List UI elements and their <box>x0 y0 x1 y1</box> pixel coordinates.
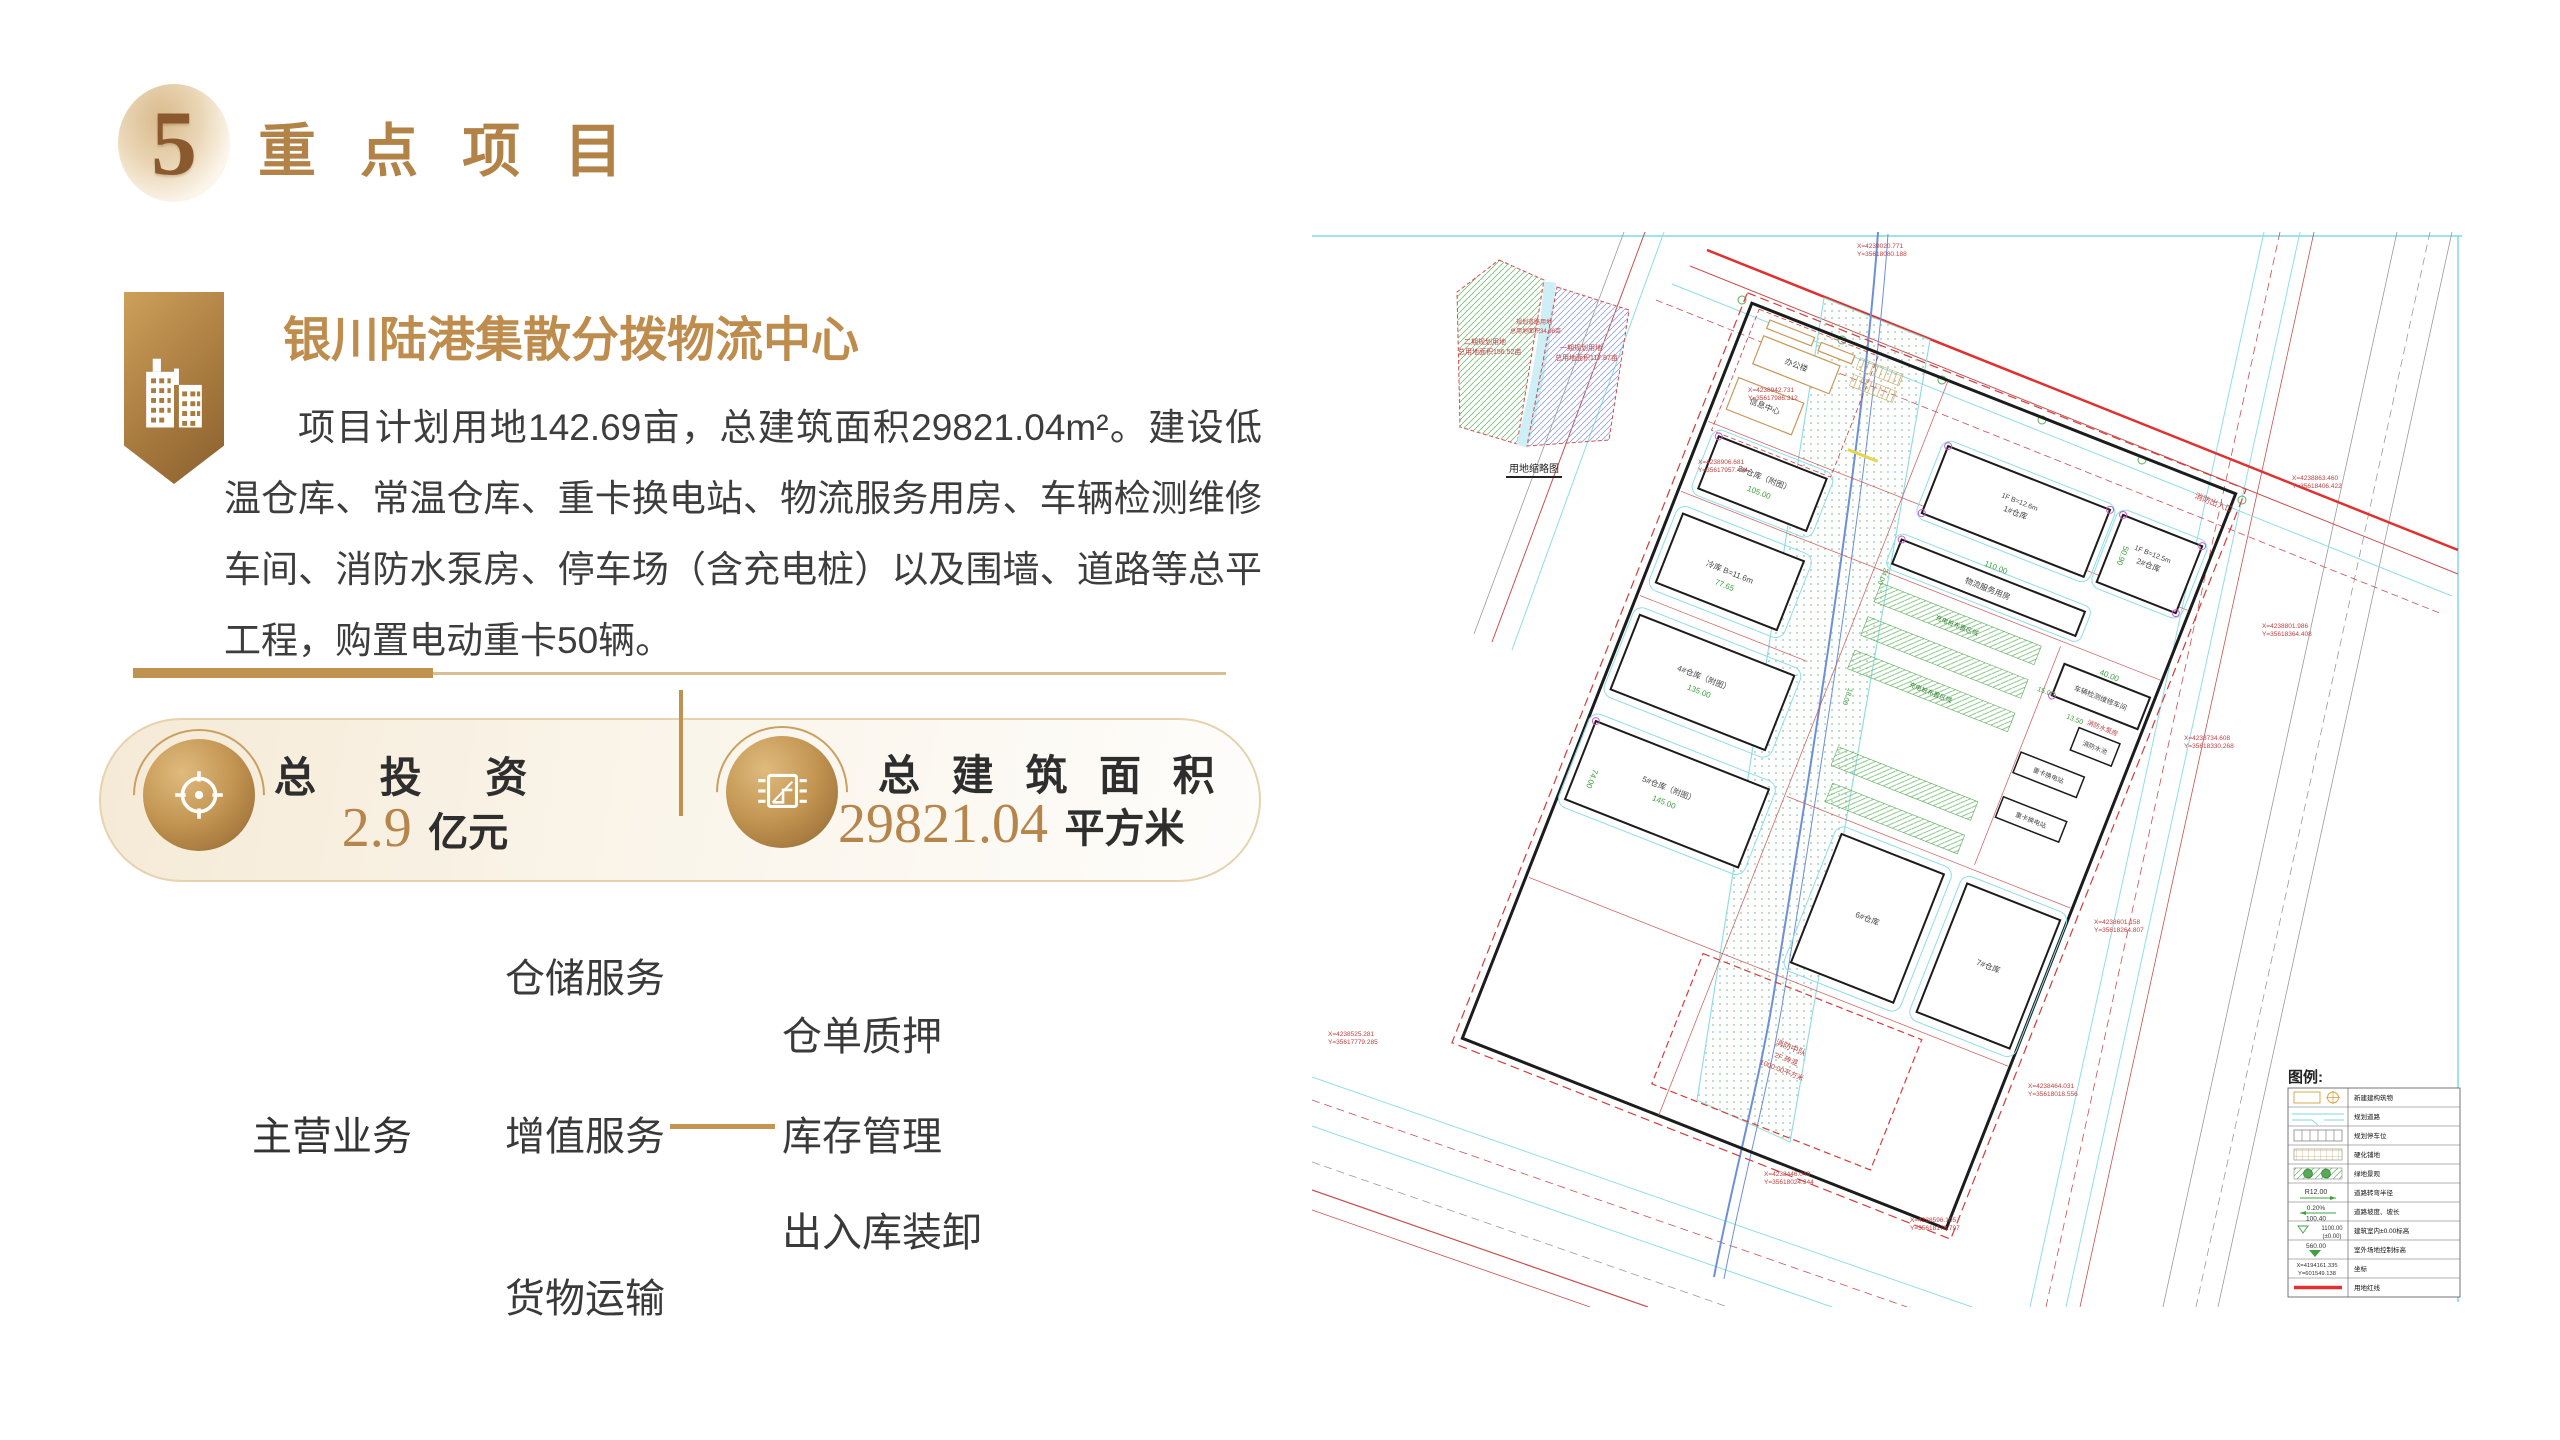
project-ribbon-badge <box>124 292 224 484</box>
business-sub-pledge: 仓单质押 <box>782 1004 942 1062</box>
business-sub-loading: 出入库装卸 <box>782 1200 982 1258</box>
divider-line <box>433 672 1226 675</box>
business-branch-warehousing: 仓储服务 <box>505 946 665 1004</box>
investment-unit: 亿元 <box>428 811 508 855</box>
svg-text:Y=35618264.807: Y=35618264.807 <box>2094 927 2144 934</box>
svg-text:X=4238525.281: X=4238525.281 <box>1328 1031 1374 1038</box>
business-branch-value-added: 增值服务 <box>505 1104 665 1162</box>
svg-text:0.20%: 0.20% <box>2307 1205 2326 1212</box>
legend: 图例: R12.00 0.20% <box>2288 1068 2460 1297</box>
svg-text:1100.00: 1100.00 <box>2321 1226 2343 1232</box>
project-title: 银川陆港集散分拨物流中心 <box>283 300 859 370</box>
svg-text:X=4238863.460: X=4238863.460 <box>2292 475 2338 482</box>
svg-text:Y=35618364.408: Y=35618364.408 <box>2262 631 2312 638</box>
divider-accent <box>133 668 433 678</box>
stats-divider <box>679 690 683 816</box>
svg-text:Y=35618178.797: Y=35618178.797 <box>1910 1225 1960 1232</box>
site-plan-drawing: 二期规划用地 总用地面积156.52亩 规划道路用地 总用地面积34.98亩 一… <box>1312 232 2462 1307</box>
business-branch-transport: 货物运输 <box>505 1266 665 1324</box>
svg-text:X=4238464.031: X=4238464.031 <box>2028 1083 2074 1090</box>
svg-text:X=4238906.681: X=4238906.681 <box>1698 459 1744 466</box>
svg-text:硬化铺地: 硬化铺地 <box>2354 1150 2381 1159</box>
svg-text:X=4239020.771: X=4239020.771 <box>1857 243 1903 250</box>
area-unit: 平方米 <box>1064 807 1184 851</box>
svg-text:新建建构筑物: 新建建构筑物 <box>2354 1093 2394 1102</box>
inset-parcel-right-area: 总用地面积117.87亩 <box>1555 353 1618 362</box>
svg-text:X=4238734.608: X=4238734.608 <box>2184 735 2230 742</box>
svg-text:道路转弯半径: 道路转弯半径 <box>2354 1188 2394 1197</box>
section-divider <box>133 668 1226 678</box>
business-connector-line <box>670 1124 775 1129</box>
inset-land-map: 二期规划用地 总用地面积156.52亩 规划道路用地 总用地面积34.98亩 一… <box>1457 260 1629 477</box>
svg-text:X=4238801.986: X=4238801.986 <box>2262 623 2308 630</box>
inset-caption: 用地缩略图 <box>1509 462 1559 475</box>
section-number: 5 <box>151 97 197 189</box>
target-icon <box>168 764 230 826</box>
legend-title: 图例: <box>2288 1068 2323 1086</box>
svg-text:Y=35617957.434: Y=35617957.434 <box>1698 467 1748 474</box>
business-root-label: 主营业务 <box>252 1104 412 1162</box>
svg-text:(±0.00): (±0.00) <box>2323 1234 2342 1240</box>
svg-text:Y=601549.138: Y=601549.138 <box>2298 1271 2336 1277</box>
svg-text:Y=35618018.556: Y=35618018.556 <box>2028 1091 2078 1098</box>
svg-text:Y=35618406.422: Y=35618406.422 <box>2292 483 2342 490</box>
inset-parcel-mid-name: 规划道路用地 <box>1516 318 1552 326</box>
green-corridor <box>1697 232 1930 1279</box>
inset-parcel-right-name: 一期规划用地 <box>1560 343 1602 352</box>
site-plan-panel: 二期规划用地 总用地面积156.52亩 规划道路用地 总用地面积34.98亩 一… <box>1312 232 2462 1307</box>
area-medallion <box>726 736 838 848</box>
svg-text:规划道路: 规划道路 <box>2354 1112 2381 1121</box>
svg-text:绿地景观: 绿地景观 <box>2354 1169 2381 1178</box>
svg-text:建筑室内±0.00标高: 建筑室内±0.00标高 <box>2354 1226 2410 1235</box>
svg-text:坐标: 坐标 <box>2354 1264 2368 1273</box>
svg-text:用地红线: 用地红线 <box>2354 1283 2381 1292</box>
svg-text:13.50: 13.50 <box>2065 713 2084 726</box>
svg-text:室外场地控制标高: 室外场地控制标高 <box>2354 1245 2407 1254</box>
svg-text:X=4238446.049: X=4238446.049 <box>1764 1171 1810 1178</box>
area-value-row: 29821.04 平方米 <box>838 792 1184 856</box>
fire-entrance-label: 消防出入口 <box>2194 490 2235 514</box>
investment-medallion <box>143 739 255 851</box>
section-number-badge: 5 <box>118 84 230 202</box>
buildings-icon <box>138 356 210 440</box>
svg-text:Y=35617986.312: Y=35617986.312 <box>1748 395 1798 402</box>
business-sub-inventory: 库存管理 <box>782 1104 942 1162</box>
svg-text:规划停车位: 规划停车位 <box>2354 1131 2387 1140</box>
svg-text:100.40: 100.40 <box>2306 1216 2326 1223</box>
project-description: 项目计划用地142.69亩，总建筑面积29821.04m²。建设低温仓库、常温仓… <box>224 392 1262 676</box>
svg-text:道路坡度、坡长: 道路坡度、坡长 <box>2354 1207 2400 1216</box>
inset-parcel-left-name: 二期规划用地 <box>1464 337 1506 346</box>
svg-text:560.00: 560.00 <box>2306 1243 2326 1250</box>
svg-text:Y=35618080.188: Y=35618080.188 <box>1857 251 1907 258</box>
area-value: 29821.04 <box>838 793 1048 855</box>
svg-text:X=4194161.335: X=4194161.335 <box>2296 1263 2337 1269</box>
inset-parcel-mid-area: 总用地面积34.98亩 <box>1510 327 1561 335</box>
svg-text:X=4238601.158: X=4238601.158 <box>2094 919 2140 926</box>
investment-value: 2.9 <box>342 797 412 859</box>
svg-text:Y=35618024.344: Y=35618024.344 <box>1764 1179 1814 1186</box>
inset-parcel-left-area: 总用地面积156.52亩 <box>1458 347 1521 356</box>
svg-text:X=4238596.105: X=4238596.105 <box>1910 1217 1956 1224</box>
page-title: 重 点 项 目 <box>258 104 636 188</box>
svg-text:Y=35618330.268: Y=35618330.268 <box>2184 743 2234 750</box>
svg-text:15.00: 15.00 <box>2036 686 2055 699</box>
svg-text:X=4238942.731: X=4238942.731 <box>1748 387 1794 394</box>
area-chart-icon <box>751 761 813 823</box>
svg-text:R12.00: R12.00 <box>2305 1189 2328 1196</box>
investment-value-row: 2.9 亿元 <box>290 796 560 860</box>
svg-text:Y=35617779.285: Y=35617779.285 <box>1328 1039 1378 1046</box>
